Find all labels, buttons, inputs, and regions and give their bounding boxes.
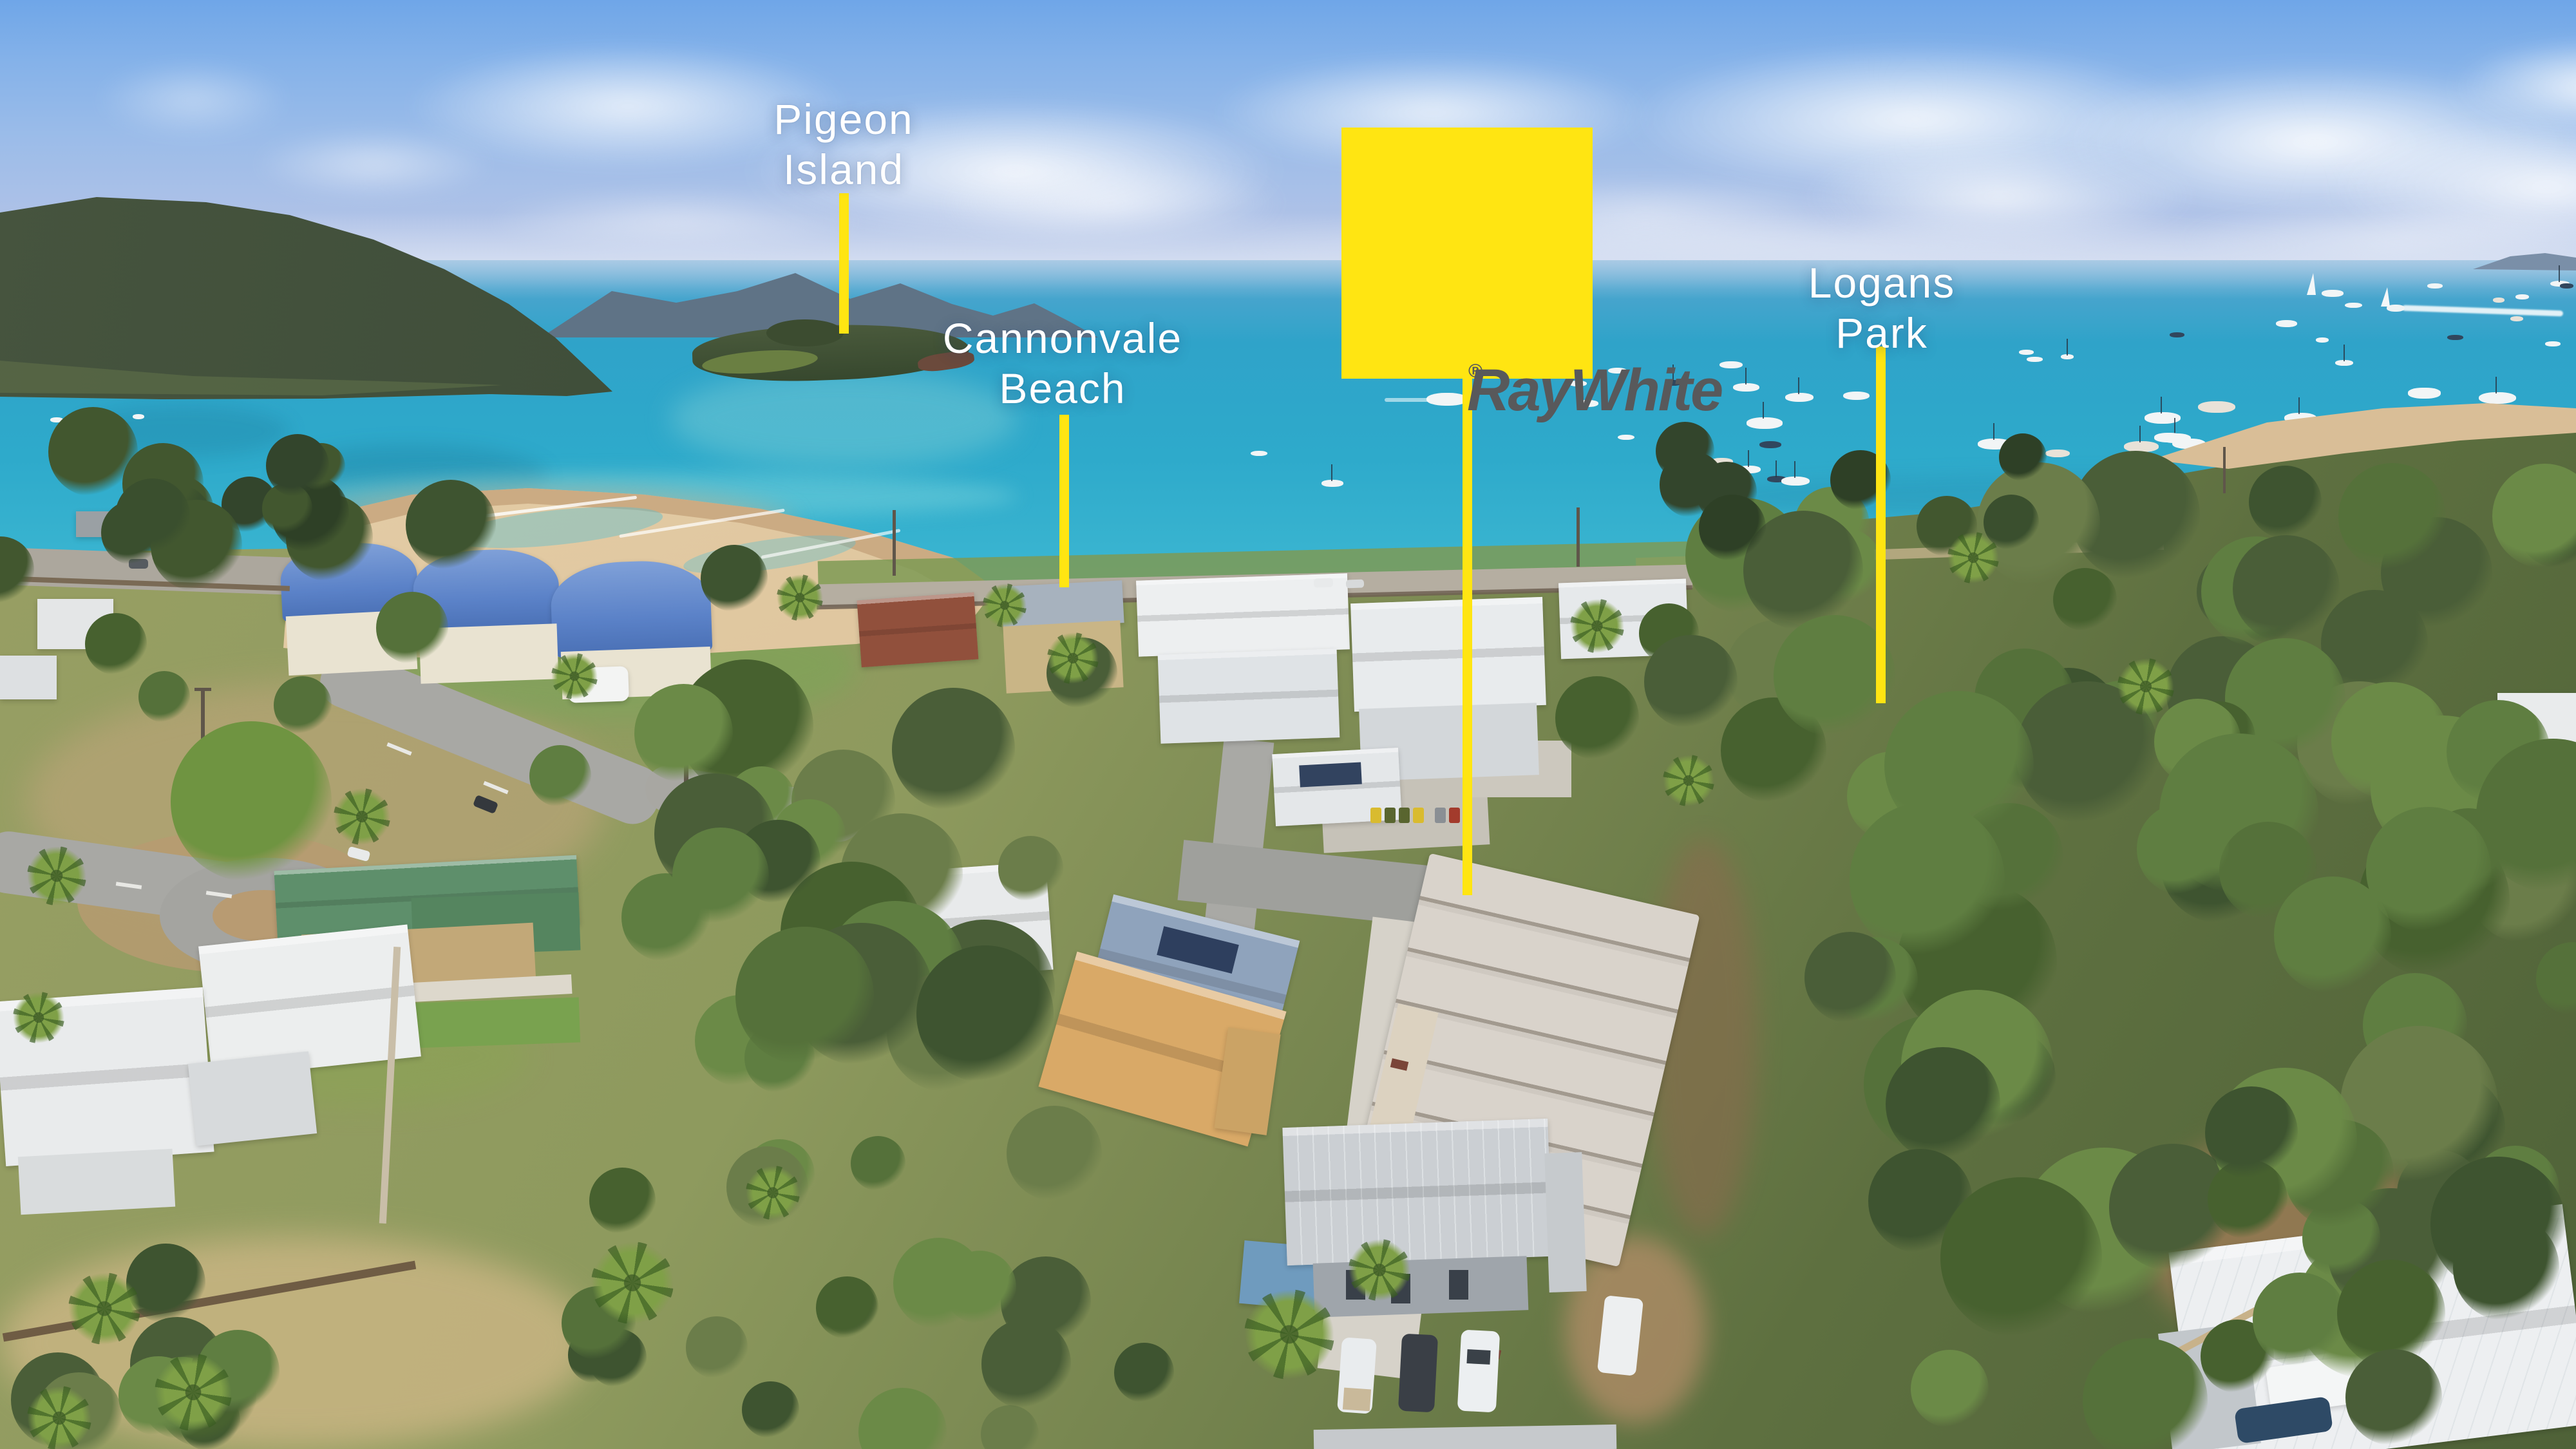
palm-tree	[1349, 1239, 1410, 1301]
boat	[1426, 393, 1468, 406]
yacht	[2124, 441, 2158, 452]
tree	[2338, 463, 2446, 571]
tree	[816, 1276, 878, 1339]
palm-tree	[1570, 599, 1624, 653]
tree	[893, 1238, 985, 1329]
boat	[2515, 294, 2529, 299]
tree	[2253, 1273, 2347, 1367]
label-logans-park-line2: Park	[1682, 308, 2081, 358]
palm-tree	[68, 1273, 140, 1345]
boat	[2560, 283, 2573, 289]
boat	[2154, 433, 2183, 442]
tree	[266, 434, 330, 498]
registered-trademark-icon: ®	[1468, 361, 1482, 383]
palm-tree	[27, 846, 86, 905]
tree	[1850, 802, 2005, 957]
label-logans-park-line1: Logans	[1682, 258, 2081, 308]
tree	[2233, 535, 2340, 642]
suv	[1398, 1334, 1438, 1413]
palm-tree	[1047, 632, 1099, 684]
sailboat-sail	[2381, 287, 2390, 307]
house-wall	[18, 1149, 175, 1215]
car	[1346, 580, 1364, 589]
tree	[1555, 676, 1639, 760]
boat	[2447, 335, 2463, 340]
tree	[1999, 433, 2047, 481]
tree	[2053, 568, 2116, 631]
tree	[998, 836, 1064, 902]
stair-wing	[1544, 1152, 1587, 1293]
wheelie-bin	[1370, 808, 1381, 823]
palm-tree	[746, 1166, 800, 1220]
house-roof	[1272, 748, 1402, 826]
house-wall	[1313, 1256, 1529, 1318]
tree	[892, 688, 1014, 810]
tree	[406, 480, 496, 570]
tree	[1656, 422, 1715, 481]
palm-tree	[551, 653, 598, 699]
palm-tree	[1947, 532, 1999, 583]
palm-tree	[155, 1354, 232, 1431]
sailboat-sail	[2307, 273, 2316, 295]
tree	[1911, 1350, 1989, 1428]
tree	[2249, 466, 2322, 538]
palm-tree	[13, 992, 64, 1043]
pole-crossarm	[194, 688, 211, 691]
windshield	[1466, 1349, 1490, 1365]
carport-roof	[188, 1052, 317, 1146]
yacht	[1747, 417, 1783, 429]
tree	[1804, 932, 1896, 1023]
tree	[1114, 1343, 1174, 1403]
cloud	[58, 45, 328, 155]
marker-line-pigeon-island	[839, 193, 849, 334]
tree	[916, 945, 1054, 1083]
wheelie-bin	[1399, 808, 1410, 823]
tree	[2205, 1086, 2298, 1179]
label-pigeon-island: Pigeon Island	[644, 94, 1043, 194]
tree	[529, 745, 591, 807]
tree	[742, 1381, 799, 1438]
yacht	[1781, 477, 1810, 486]
palm-tree	[27, 1386, 91, 1449]
yacht	[2335, 360, 2353, 366]
tree	[686, 1316, 748, 1379]
tree	[1886, 1047, 2000, 1161]
yacht	[1785, 393, 1814, 402]
boat	[1719, 361, 1743, 368]
boat	[1618, 435, 1634, 440]
yacht	[2479, 392, 2515, 404]
power-pole	[2223, 447, 2226, 493]
tree	[274, 676, 332, 734]
tree	[851, 1136, 905, 1191]
front-house-roof	[1282, 1119, 1552, 1265]
boat	[2170, 332, 2184, 337]
tree	[2345, 1349, 2442, 1446]
ute-tray	[1343, 1388, 1371, 1412]
tree	[1699, 495, 1766, 562]
tree	[1644, 635, 1738, 728]
label-pigeon-island-line1: Pigeon	[644, 94, 1043, 144]
boat	[1759, 441, 1781, 448]
boat	[2510, 316, 2524, 321]
label-cannonvale-beach: Cannonvale Beach	[863, 313, 1262, 413]
power-pole	[1577, 507, 1580, 567]
boat	[2276, 320, 2297, 327]
tree	[171, 721, 332, 882]
apartment-roof	[550, 559, 713, 659]
palm-tree	[777, 574, 823, 621]
label-logans-park: Logans Park	[1682, 258, 2081, 358]
tree	[115, 478, 190, 553]
tree	[376, 592, 448, 664]
boat	[2408, 388, 2441, 398]
tree	[1007, 1106, 1102, 1201]
raywhite-logo-board: RayWhite®	[1341, 128, 1593, 379]
palm-tree	[1663, 755, 1714, 806]
boat	[133, 414, 144, 419]
boat	[1843, 392, 1870, 400]
tree	[2137, 803, 2228, 895]
boat	[2345, 303, 2362, 308]
tree	[701, 545, 768, 612]
wheelie-bin	[1449, 808, 1460, 823]
tree	[2366, 807, 2492, 933]
car	[1314, 578, 1333, 587]
marker-line-logans-park	[1876, 346, 1886, 703]
marker-line-property	[1463, 377, 1472, 895]
boat	[2198, 401, 2235, 413]
label-cannonvale-beach-line2: Beach	[863, 363, 1262, 413]
palm-tree	[591, 1242, 674, 1324]
house-roof	[1158, 649, 1340, 744]
solar-panels	[1299, 762, 1362, 788]
boat	[2493, 298, 2505, 303]
palm-tree	[983, 583, 1027, 627]
red-roof-house	[857, 592, 979, 667]
wheelie-bin	[1435, 808, 1446, 823]
power-pole	[893, 510, 896, 576]
house-roof	[0, 656, 57, 699]
tree	[735, 927, 873, 1065]
window	[1449, 1270, 1468, 1300]
boat	[2427, 283, 2443, 289]
wheelie-bin	[1385, 808, 1396, 823]
aerial-photo: Pigeon Island Cannonvale Beach Logans Pa…	[0, 0, 2576, 1449]
house-roof	[1350, 597, 1546, 712]
boat	[2322, 290, 2344, 297]
palm-tree	[2117, 658, 2174, 715]
label-pigeon-island-line2: Island	[644, 144, 1043, 194]
palm-tree	[1244, 1289, 1334, 1379]
tree	[981, 1319, 1072, 1409]
island-knoll	[766, 319, 844, 346]
tree	[138, 671, 190, 723]
boat	[2545, 341, 2561, 346]
boat-wake	[1385, 398, 1430, 402]
tree	[589, 1168, 656, 1234]
tree	[1940, 1177, 2102, 1339]
palm-tree	[334, 788, 390, 845]
tree	[672, 828, 768, 923]
tree	[85, 613, 147, 675]
marker-line-cannonvale-beach	[1059, 415, 1069, 587]
label-cannonvale-beach-line1: Cannonvale	[863, 313, 1262, 363]
wheelie-bin	[1413, 808, 1424, 823]
van	[1597, 1295, 1643, 1376]
tree	[634, 684, 733, 782]
yacht	[1321, 480, 1343, 487]
tree	[2453, 1215, 2559, 1321]
suv	[1457, 1330, 1501, 1413]
